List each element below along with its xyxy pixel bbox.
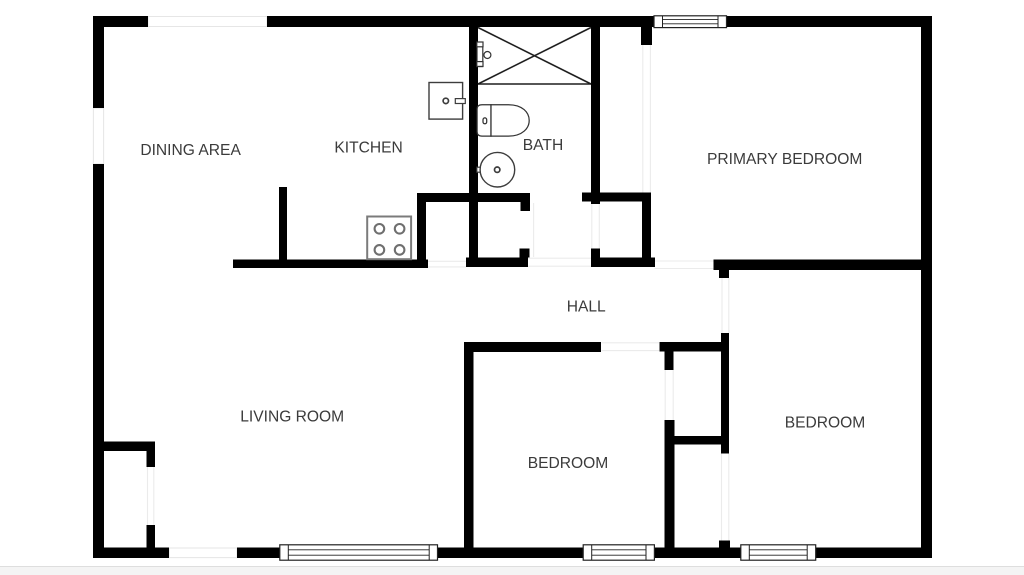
svg-text:BEDROOM: BEDROOM (785, 415, 866, 432)
svg-text:PRIMARY BEDROOM: PRIMARY BEDROOM (707, 151, 862, 168)
svg-text:HALL: HALL (567, 299, 606, 316)
svg-text:LIVING ROOM: LIVING ROOM (240, 409, 344, 426)
svg-text:BATH: BATH (523, 137, 563, 154)
svg-text:DINING AREA: DINING AREA (140, 142, 241, 159)
svg-text:KITCHEN: KITCHEN (334, 140, 402, 157)
svg-text:BEDROOM: BEDROOM (528, 455, 609, 472)
